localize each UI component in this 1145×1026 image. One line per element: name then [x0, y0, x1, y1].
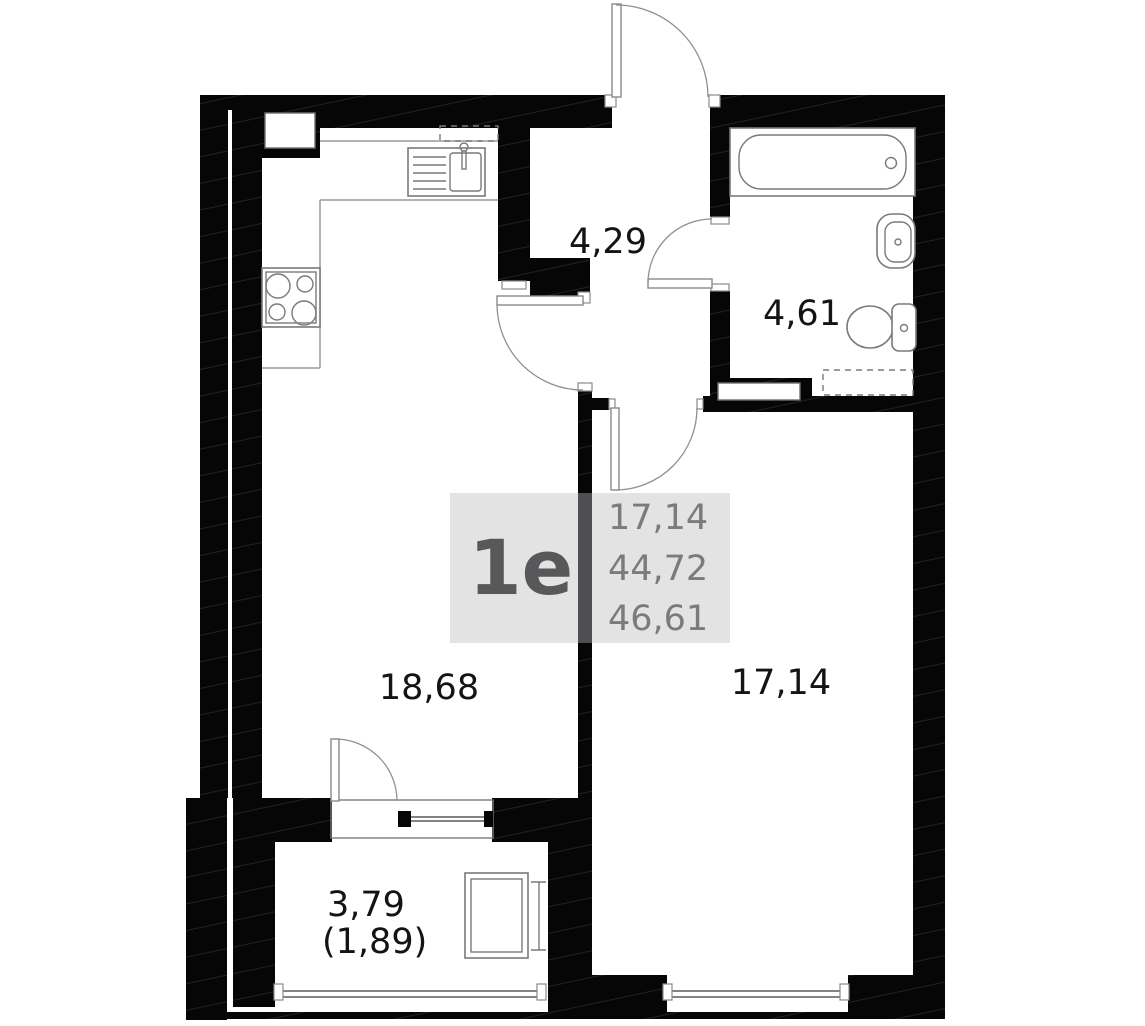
kitchen-door-jamb-top — [502, 281, 526, 289]
kitchen-door-leaf — [497, 296, 583, 305]
bathroom-door-swing-arc — [648, 219, 712, 283]
wall-balcony-bedroom-side — [548, 842, 592, 979]
vent-shaft-bathroom — [718, 383, 800, 400]
legend: 1e 17,14 44,72 46,61 — [450, 493, 730, 643]
wash-basin — [877, 214, 915, 268]
balcony-area-label: 3,79 — [327, 885, 405, 925]
bedroom-door-leaf — [611, 408, 619, 490]
wall-balcony-outer-left — [186, 798, 227, 1020]
hallway-area-label: 4,29 — [569, 222, 647, 262]
wall-right — [913, 95, 945, 1015]
bedroom-door-jamb-right — [697, 399, 703, 409]
balcony-window-end-post-left — [274, 984, 283, 1000]
balcony-door-swing-arc — [335, 739, 397, 801]
wall-left-joint-line — [228, 110, 232, 798]
bathroom-fixtures — [730, 128, 916, 395]
legend-living-area: 44,72 — [608, 549, 708, 589]
wall-balcony-bedroom-top — [492, 798, 592, 842]
wall-bottom-face-line — [186, 1012, 945, 1019]
wall-left-inner — [232, 95, 262, 800]
kitchen-fixtures — [262, 126, 498, 368]
stove — [262, 268, 320, 327]
kitchen-living-area-label: 18,68 — [379, 668, 479, 708]
balcony-unit-frame — [331, 800, 493, 838]
toilet — [847, 304, 916, 351]
bedroom-window-end-post-right — [840, 984, 849, 1000]
floor-plan: 1e 17,14 44,72 46,61 4,29 4,61 18,68 17,… — [0, 0, 1145, 1022]
legend-total-area: 46,61 — [608, 599, 708, 639]
legend-unit-type: 1e — [469, 523, 573, 612]
balcony-window-end-post-right — [537, 984, 546, 1000]
balcony-window — [274, 984, 546, 1000]
toilet-bowl — [847, 306, 893, 348]
bedroom-window-end-post-left — [663, 984, 672, 1000]
wall-top-right — [710, 95, 945, 128]
balcony-window-post-right — [484, 811, 493, 827]
legend-room-area: 17,14 — [608, 498, 708, 538]
bathtub-outline — [730, 128, 915, 196]
bathtub — [730, 128, 915, 196]
balcony-cabinet-outline — [465, 873, 528, 958]
washing-machine-outline — [823, 370, 913, 395]
wall-left-outer — [200, 95, 228, 800]
entry-door-leaf — [612, 4, 621, 97]
wall-bottom-middle — [548, 975, 667, 1015]
floor-plan-page: 1e 17,14 44,72 46,61 4,29 4,61 18,68 17,… — [0, 0, 1145, 1022]
balcony-bracket — [531, 882, 546, 950]
balcony-coefficient-label: (1,89) — [322, 922, 427, 962]
bedroom-window — [663, 984, 849, 1000]
toilet-tank — [892, 304, 916, 351]
wall-balcony-left-column — [233, 798, 275, 1007]
entry-door-swing-arc — [616, 5, 708, 97]
legend-divider-bar — [578, 493, 592, 643]
entry-door-jamb-right — [709, 95, 720, 107]
kitchen-dashed-unit — [440, 126, 498, 141]
vent-shaft-kitchen — [265, 113, 315, 148]
balcony-door-leaf — [331, 739, 339, 801]
wall-balcony-joint-line — [227, 798, 233, 1016]
bedroom-door-swing-arc — [615, 408, 697, 490]
wall-bathroom-left-upper — [710, 95, 730, 217]
bedroom-area-label: 17,14 — [731, 663, 831, 703]
bathroom-area-label: 4,61 — [763, 294, 841, 334]
kitchen-sink — [408, 143, 485, 196]
wall-bedroom-door-stub — [592, 398, 609, 410]
bathroom-door-jamb-bottom — [711, 284, 729, 291]
balcony-fixtures — [465, 873, 546, 958]
kitchen-door-swing-arc — [497, 304, 583, 390]
wall-kitchen-hall — [498, 95, 530, 281]
bathroom-door-leaf — [648, 279, 712, 288]
bathroom-door-jamb-top — [711, 217, 729, 224]
balcony-window-post-left — [398, 811, 411, 827]
